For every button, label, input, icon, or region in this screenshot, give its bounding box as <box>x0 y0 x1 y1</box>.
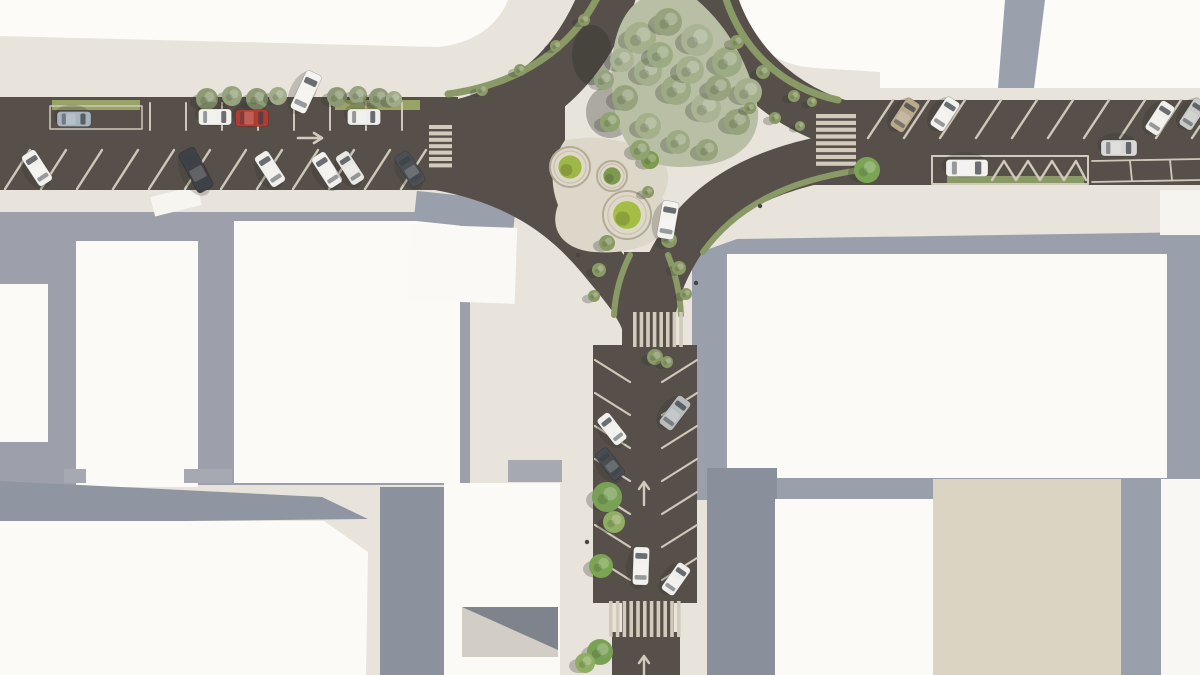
crosswalk-south-upper-bar <box>633 312 637 347</box>
pedestrian <box>758 204 762 208</box>
crosswalk-south-lower-bar <box>650 601 654 637</box>
building-bottomright <box>775 499 935 675</box>
parked-car-silver-blue <box>53 105 91 128</box>
island-tree-texture <box>670 140 678 148</box>
shrub-nw-texture <box>580 19 584 23</box>
building-sw <box>407 224 518 304</box>
pedestrian <box>585 540 589 544</box>
driving-car-white-windshield <box>635 553 647 559</box>
island-tree-texture <box>729 119 738 128</box>
parked-minibus-white-rear-window <box>952 162 957 175</box>
building-bottomleft <box>0 521 368 675</box>
crosswalk-south-upper-bar <box>653 312 657 347</box>
crosswalk-east-bar <box>816 121 856 125</box>
island-tree-texture <box>681 67 691 77</box>
crosswalk-east-bar <box>816 155 856 159</box>
building-right-main <box>727 254 1167 478</box>
median-shrub-south-texture <box>650 355 656 361</box>
crosswalk-south-lower-bar <box>616 601 620 637</box>
crosswalk-south-lower-bar <box>629 601 633 637</box>
apron-tree-texture <box>644 158 650 164</box>
street-tree-west-texture <box>352 93 358 99</box>
verge-shrub-south-texture <box>595 269 600 274</box>
shrub-ne-texture <box>809 101 813 105</box>
plaza-gray-band <box>1121 479 1161 675</box>
crosswalk-south-upper-bar <box>640 312 644 347</box>
parked-minibus-white-roof <box>957 162 969 175</box>
aerial-intersection-render <box>0 0 1200 675</box>
parked-car-red-roof <box>244 112 253 125</box>
crosswalk-south-lower-bar <box>663 601 667 637</box>
verge-shrub-south-texture <box>602 241 608 247</box>
pedestrian <box>694 281 698 285</box>
building-right-top-patch <box>1160 190 1200 235</box>
street-tree-south-texture <box>607 520 615 528</box>
crosswalk-south-lower-bar <box>643 601 647 637</box>
shrub-ne-texture <box>733 41 738 46</box>
street-tree-south-texture <box>598 494 609 505</box>
street-tree-south-texture <box>579 661 586 668</box>
island-tree-texture <box>659 19 669 29</box>
crosswalk-east-bar <box>816 162 856 166</box>
parked-car-white-rear-window <box>352 111 356 123</box>
parked-car-red-windshield <box>258 112 263 125</box>
scene-svg <box>0 0 1200 675</box>
planter-large-west <box>550 147 590 187</box>
crosswalk-south-upper-bar <box>646 312 650 347</box>
island-tree-texture <box>640 123 649 132</box>
shadow-stub-c <box>508 460 562 482</box>
plaza-white-strip <box>1161 479 1200 675</box>
island-tree-texture <box>710 85 719 94</box>
crosswalk-east-bar <box>816 141 856 145</box>
shrub-ne-texture <box>790 95 794 99</box>
island-tree-texture <box>604 120 611 127</box>
shrub-ne-texture <box>759 71 764 76</box>
island-tree-texture <box>697 105 708 116</box>
street-tree-south-texture <box>592 649 601 658</box>
street-tree-west-texture <box>272 94 278 100</box>
crosswalk-east-bar <box>816 134 856 138</box>
driving-car-silver <box>1097 133 1137 157</box>
parked-car-red-rear-window <box>240 112 244 125</box>
crosswalk-west-bar <box>429 144 452 148</box>
crosswalk-west-bar <box>429 131 452 135</box>
crosswalk-south-upper-bar <box>679 312 683 347</box>
island-tree-texture <box>617 95 626 104</box>
crosswalk-west-bar <box>429 151 452 155</box>
island-tree-texture <box>718 59 729 70</box>
crosswalk-south-lower-bar <box>677 601 681 637</box>
driving-car-white-rear-window <box>635 575 647 580</box>
shrub-nw-texture <box>478 89 482 93</box>
island-tree-texture <box>634 148 641 155</box>
crosswalk-west-bar <box>429 138 452 142</box>
island-tree-texture <box>667 87 678 98</box>
planter-small-mid-shade <box>605 174 614 183</box>
island-tree-texture <box>652 52 661 61</box>
crosswalk-south-lower-bar <box>636 601 640 637</box>
plaza-beige <box>933 479 1121 675</box>
parked-car-silver-blue-roof <box>66 114 76 125</box>
island-tree-texture <box>687 37 698 48</box>
median-shrub-south-texture <box>663 361 667 365</box>
shrub-se-texture <box>771 117 775 121</box>
island-tree-texture <box>630 35 641 46</box>
crosswalk-south-upper-bar <box>673 312 677 347</box>
crosswalk-east-bar <box>816 128 856 132</box>
building-left-a <box>0 284 48 442</box>
crosswalk-south-upper-bar <box>666 312 670 347</box>
crosswalk-south-lower-bar <box>623 601 627 637</box>
road-south-lower <box>612 632 680 675</box>
shrub-nw-texture <box>552 45 556 49</box>
parked-car-white-windshield <box>370 111 375 123</box>
shrub-se-texture <box>797 125 801 129</box>
driving-car-silver-rear-window <box>1106 142 1110 154</box>
verge-shrub-south-texture <box>590 295 594 299</box>
island-tree-texture <box>700 148 708 156</box>
crosswalk-south-lower-bar <box>609 601 613 637</box>
street-tree-west-texture <box>226 94 233 101</box>
planter-large-south-shade <box>615 211 629 225</box>
building-left-b <box>76 241 198 487</box>
parked-car-white-windshield <box>221 111 226 123</box>
shrub-nw-texture <box>516 69 520 73</box>
parked-car-white-roof <box>207 111 216 123</box>
planter-small-mid <box>597 161 627 191</box>
verge-shrub-south-texture <box>682 293 686 297</box>
shadow-stub-b <box>184 469 232 483</box>
driving-car-white-roof <box>635 564 647 575</box>
apron-shrub-texture <box>644 191 648 195</box>
verge-shrub-south-texture <box>675 267 680 272</box>
crosswalk-west-bar <box>429 157 452 161</box>
driving-car-silver-windshield <box>1126 142 1131 154</box>
street-tree-west-texture <box>373 96 380 103</box>
driving-van-white-roof <box>660 217 675 230</box>
shadow-stub-a <box>64 469 86 483</box>
street-tree-west-texture <box>331 95 338 102</box>
parked-car-silver-blue-rear-window <box>62 114 66 125</box>
parked-car-white-rear-window <box>203 111 207 123</box>
alley-band-bottomcenter <box>380 487 444 675</box>
crosswalk-east-bar <box>816 114 856 118</box>
crosswalk-south-lower-bar <box>657 601 661 637</box>
island-tree-texture <box>598 78 605 85</box>
island-tree-texture <box>639 69 649 79</box>
building-side-band <box>707 468 777 675</box>
crosswalk-south-lower-bar <box>670 601 674 637</box>
island-tree-texture <box>739 89 749 99</box>
island-tree-texture <box>614 58 622 66</box>
crosswalk-west-bar <box>429 125 452 129</box>
crosswalk-west-bar <box>429 163 452 167</box>
crosswalk-east-bar <box>816 148 856 152</box>
street-tree-south-texture <box>593 564 601 572</box>
parked-minibus-white-windshield <box>975 162 981 175</box>
pedestrian <box>576 253 580 257</box>
corner-tree-east-texture <box>859 167 868 176</box>
crosswalk-south-upper-bar <box>659 312 663 347</box>
parked-car-silver-blue-windshield <box>80 114 85 125</box>
parked-car-white-roof <box>356 111 365 123</box>
planter-large-west-shade <box>560 164 572 176</box>
street-tree-west-texture <box>389 97 395 103</box>
parked-minibus-white <box>942 152 988 178</box>
driving-car-silver-roof <box>1111 142 1121 154</box>
shrub-se-texture <box>746 107 750 111</box>
